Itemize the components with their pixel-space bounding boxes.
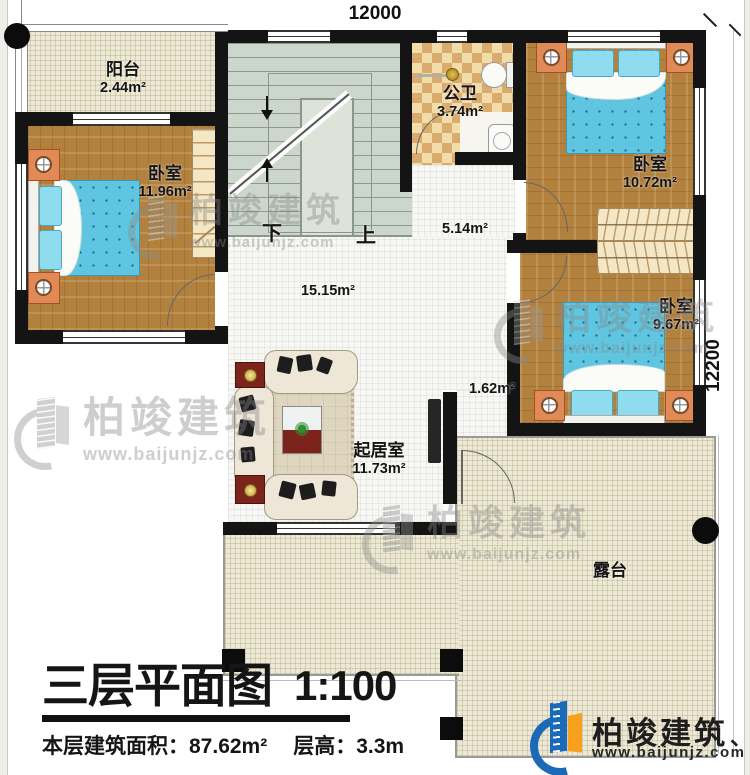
title-block: 三层平面图 1:100 本层建筑面积：87.62m² 层高：3.3m xyxy=(42,662,402,760)
floor-area-value: 87.62m² xyxy=(189,735,267,758)
lamp-icon xyxy=(244,484,257,497)
label-passage-area: 1.62m² xyxy=(466,381,518,398)
bed-left-headboard xyxy=(28,180,39,276)
window xyxy=(268,30,330,43)
watermark: 柏竣建筑 www.baijunjz.com xyxy=(20,396,271,465)
brand-logo-url: www.baijunjz.com xyxy=(592,744,745,761)
balcony-railing xyxy=(15,24,228,32)
stair-arrow-stem-bottom xyxy=(266,168,268,182)
lamp-icon xyxy=(35,156,52,173)
bed-pillow xyxy=(572,50,614,77)
stair-up-label: 上 xyxy=(356,225,376,249)
label-bathroom: 公卫 3.74m² xyxy=(432,84,488,121)
wall-segment xyxy=(693,30,706,88)
label-living-room: 起居室 11.73m² xyxy=(346,441,412,478)
watermark: 柏竣建筑 www.baijunjz.com xyxy=(134,194,345,251)
watermark-brand: 柏竣建筑 xyxy=(555,298,719,336)
towel-bar-knob xyxy=(446,68,459,81)
nightstand xyxy=(536,42,567,73)
window xyxy=(568,30,660,43)
watermark-building-icon xyxy=(500,298,546,354)
door-terrace-leaf xyxy=(461,450,463,504)
watermark-text: 柏竣建筑 www.baijunjz.com xyxy=(555,298,719,358)
plan-scale: 1:100 xyxy=(294,665,396,709)
room-name: 阳台 xyxy=(88,60,158,80)
watermark-tower xyxy=(383,505,400,554)
nightstand xyxy=(665,390,696,421)
stair-arrow-stem-top xyxy=(266,96,268,110)
bed-top-right xyxy=(566,38,664,152)
watermark-url: www.baijunjz.com xyxy=(83,444,271,465)
plan-title: 三层平面图 xyxy=(42,662,272,709)
wall-segment xyxy=(15,112,73,126)
floor-area-label: 本层建筑面积： xyxy=(42,735,189,758)
lamp-icon xyxy=(244,369,257,382)
nightstand xyxy=(28,272,60,304)
watermark-brand: 柏竣建筑 xyxy=(83,396,271,440)
nightstand xyxy=(534,390,565,421)
room-area: 10.72m² xyxy=(620,175,680,192)
room-area: 2.44m² xyxy=(88,80,158,97)
window xyxy=(63,330,185,344)
bed-left-pillow xyxy=(39,186,62,226)
bed-left-pillow xyxy=(39,230,62,270)
wall-segment xyxy=(507,423,706,436)
bed-left xyxy=(28,180,138,274)
room-name: 卧室 xyxy=(132,164,198,184)
brand-logo: 柏竣建筑 、 www.baijunjz.com xyxy=(500,640,750,775)
room-area: 3.74m² xyxy=(432,104,488,121)
wardrobe-top-right xyxy=(597,208,695,241)
wall-segment xyxy=(228,30,268,43)
watermark-url: www.baijunjz.com xyxy=(189,234,345,251)
watermark: 柏竣建筑 www.baijunjz.com xyxy=(500,298,719,358)
sofa-pillow xyxy=(296,354,313,372)
wall-segment xyxy=(513,43,526,180)
room-name: 公卫 xyxy=(432,84,488,104)
room-name: 卧室 xyxy=(620,155,680,175)
column-marker xyxy=(4,23,30,49)
bed-pillow xyxy=(571,390,613,418)
watermark: 柏竣建筑 www.baijunjz.com xyxy=(368,504,591,564)
label-terrace: 露台 xyxy=(588,561,632,581)
balcony-sliding-door xyxy=(73,112,170,126)
watermark-building-icon xyxy=(368,504,418,564)
nightstand xyxy=(28,149,60,181)
column-axis-line xyxy=(21,0,22,24)
coffee-table xyxy=(282,406,322,454)
label-corridor-area: 5.14m² xyxy=(441,221,489,238)
wall-segment xyxy=(400,43,412,192)
dimension-tick xyxy=(729,24,742,37)
wall-segment xyxy=(223,522,277,535)
wall-segment xyxy=(507,240,597,253)
bed-pillow xyxy=(617,390,659,418)
side-table xyxy=(235,362,265,388)
watermark-text: 柏竣建筑 www.baijunjz.com xyxy=(83,396,271,465)
side-table xyxy=(235,475,265,504)
watermark-tower xyxy=(56,405,69,445)
watermark-text: 柏竣建筑 www.baijunjz.com xyxy=(427,504,591,564)
title-underline xyxy=(42,715,350,722)
watermark-brand: 柏竣建筑 xyxy=(189,194,345,230)
lamp-icon xyxy=(35,279,52,296)
watermark-tower xyxy=(37,397,55,450)
wall-segment xyxy=(15,330,63,344)
bed-sheet xyxy=(563,364,665,392)
floor-height-value: 3.3m xyxy=(356,735,404,758)
sink-basin xyxy=(493,132,511,150)
sofa-pillow xyxy=(321,480,336,496)
window xyxy=(15,164,28,290)
dimension-tick xyxy=(703,13,717,27)
sofa-pillow xyxy=(299,483,317,501)
watermark-building-icon xyxy=(134,194,180,250)
wall-segment xyxy=(215,30,228,126)
lamp-icon xyxy=(672,397,689,414)
watermark-tower xyxy=(165,202,177,238)
watermark-tower xyxy=(148,195,164,241)
stair-arrow-up-icon xyxy=(261,158,273,168)
logo-tower-orange xyxy=(568,711,582,752)
wall-segment xyxy=(467,30,568,43)
logo-tower-blue xyxy=(550,701,567,753)
room-area: 11.73m² xyxy=(346,461,412,478)
brand-logo-icon xyxy=(530,700,590,770)
stair-arrow-down-icon xyxy=(261,110,273,120)
watermark-url: www.baijunjz.com xyxy=(555,340,719,358)
watermark-building-icon xyxy=(20,396,74,460)
watermark-tower xyxy=(514,299,530,345)
dimension-top: 12000 xyxy=(340,3,410,25)
wall-segment xyxy=(185,330,228,344)
wall-segment xyxy=(455,152,515,165)
column-marker xyxy=(440,649,463,672)
column-marker xyxy=(692,517,719,544)
column-marker xyxy=(440,717,463,740)
watermark-tower xyxy=(531,306,543,342)
watermark-tower xyxy=(401,513,413,551)
wardrobe-mid-right xyxy=(597,241,695,274)
plant-icon xyxy=(293,420,311,438)
watermark-brand: 柏竣建筑 xyxy=(427,504,591,542)
title-row: 三层平面图 1:100 xyxy=(42,662,402,709)
wall-segment xyxy=(693,385,706,436)
page-edge-left xyxy=(0,0,8,775)
watermark-text: 柏竣建筑 www.baijunjz.com xyxy=(189,194,345,251)
tv xyxy=(428,399,441,463)
wall-segment xyxy=(330,30,437,43)
floor-area: 本层建筑面积：87.62m² xyxy=(42,730,267,760)
floor-plan-page: 阳台 2.44m² 卧室 11.96m² 公卫 3.74m² 卧室 10.72m… xyxy=(0,0,750,775)
label-bedroom-top-right: 卧室 10.72m² xyxy=(620,155,680,192)
room-name: 起居室 xyxy=(346,441,412,461)
label-balcony: 阳台 2.44m² xyxy=(88,60,158,97)
lamp-icon xyxy=(673,49,690,66)
floor-height-label: 层高： xyxy=(293,735,356,758)
towel-bar xyxy=(415,74,449,77)
watermark-url: www.baijunjz.com xyxy=(427,546,591,564)
window xyxy=(693,88,706,195)
wall-segment xyxy=(443,392,457,504)
title-info-row: 本层建筑面积：87.62m² 层高：3.3m xyxy=(42,730,402,760)
bed-pillow xyxy=(618,50,660,77)
lamp-icon xyxy=(541,397,558,414)
floor-height: 层高：3.3m xyxy=(293,730,404,760)
lamp-icon xyxy=(543,49,560,66)
window xyxy=(437,30,467,43)
label-hall-area: 15.15m² xyxy=(300,283,356,300)
wall-segment xyxy=(693,195,706,280)
